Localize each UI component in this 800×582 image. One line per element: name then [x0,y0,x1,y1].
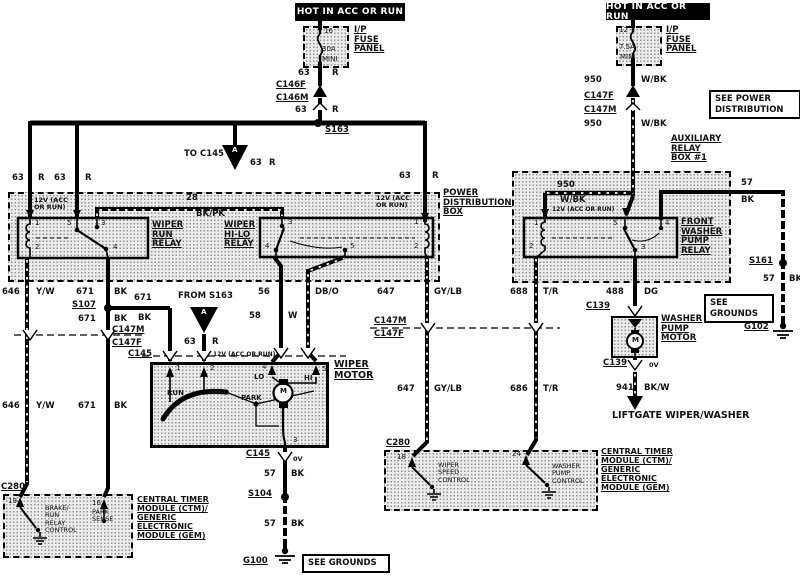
connector-c139-bottom: C139 [603,359,627,369]
from-s163-label: FROM S163 [178,292,233,302]
wire-941-num: 941 [616,384,634,394]
washer-m-letter: M [632,337,639,345]
see-power-distribution-box: SEE POWER DISTRIBUTION [709,90,800,119]
motor-pin3: 3 [293,437,297,445]
wire-56-num: 56 [258,288,270,298]
wire-950b-color: W/BK [641,120,667,130]
hot-label-right: HOT IN ACC OR RUN [606,2,710,22]
relay2-pin3: 3 [288,219,292,227]
relay2-pin1: 1 [414,219,418,227]
wire-646b-num: 646 [2,402,20,412]
see-grounds-box-bottom: SEE GROUNDS [302,554,390,573]
connector-c147m-top: C147M [584,106,616,116]
see-grounds-box-right: SEE GROUNDS [704,294,774,323]
wire-57d-color: BK [291,520,304,530]
front-washer-pump-relay-label: FRONT WASHER PUMP RELAY [681,218,722,256]
connector-c145-left: C145 [128,350,152,360]
ctm-right-title: CENTRAL TIMER MODULE (CTM)/ GENERIC ELEC… [601,448,673,493]
wire-647b-num: 647 [397,385,415,395]
wire-671b-num: 671 [134,294,152,304]
wire-63d-num: 63 [184,338,196,348]
connector-c139-top: C139 [586,302,610,312]
fuse1-pin: 16 [324,28,333,36]
wire-63a-num: 63 [298,69,310,79]
motor-pin2: 2 [210,365,214,373]
motor-m-letter: M [280,388,287,396]
wire-646a-num: 646 [2,288,20,298]
connector-c280-right: C280 [386,439,410,449]
triangle-a-letter-bottom: A [201,309,206,317]
fuse2-rating: 7.5A [619,44,635,52]
ground-g100: G100 [243,557,268,567]
connector-c147m-mid: C147M [374,317,406,327]
ctm-left-park-sense-label: PARK SENSE [92,509,113,524]
wire-57a-color: BK [741,196,754,206]
wire-671d-num: 671 [78,402,96,412]
connector-lines [14,328,560,356]
wire-57b-num: 57 [763,275,775,285]
hot-in-acc-box-left: HOT IN ACC OR RUN [295,3,405,21]
ctm-left-pin19: 19 [8,498,17,506]
wire-63b-num: 63 [295,106,307,116]
wire-647a-color: GY/LB [434,288,462,298]
wire-63d-color: R [212,338,219,348]
wire-950c-num: 950 [557,181,575,191]
washer-pump-motor-title: WASHER PUMP MOTOR [661,315,702,344]
ground-g102: G102 [744,323,769,333]
relay-internals [26,217,661,258]
wire-63c-num: 63 [250,159,262,169]
motor-hi-label: HI [304,375,312,383]
washer-0v-label: 0V [649,362,659,369]
connector-c146f: C146F [276,81,306,91]
ctm-right-pin24: 24 [512,451,521,459]
relay2-pin4: 4 [265,243,269,251]
connector-c280-left: C280 [1,483,25,493]
wire-58-num: 58 [249,312,261,322]
motor-12v-label: 12V (ACC OR RUN) [213,352,275,359]
wire-950b-num: 950 [584,120,602,130]
liftgate-wiper-washer-label: LIFTGATE WIPER/WASHER [612,411,750,422]
relay-outlines [18,218,677,258]
relay3-pin5: 5 [613,220,617,228]
wire-671b-color: BK [138,314,151,324]
relay2-pin2: 2 [414,243,418,251]
connector-c147f-mid: C147F [374,330,404,340]
relay1-pin4: 4 [113,244,117,252]
wire-950a-color: W/BK [641,76,667,86]
wire-671d-color: BK [114,402,127,412]
wire-671c-color: BK [114,315,127,325]
ctm-right-wiper-speed-label: WIPER SPEED CONTROL [438,462,470,484]
wire-28-color: BK/PK [196,210,225,220]
relay1-pin1: 1 [35,220,39,228]
feed2-color: R [85,174,92,184]
connector-c146m: C146M [276,94,308,104]
ctm-left-pin16: 16 [92,500,101,508]
feed3-num: 63 [399,172,411,182]
wire-647b-color: GY/LB [434,385,462,395]
relay3-pin4: 4 [665,220,669,228]
ctm-left-title: CENTRAL TIMER MODULE (CTM)/ GENERIC ELEC… [137,496,209,541]
wire-58-color: W [288,312,297,322]
connector-c147f-left: C147F [112,339,142,349]
to-c145-label: TO C145 [184,150,224,160]
relay1-pin2: 2 [35,244,39,252]
pdb-12v-right: 12V (ACC OR RUN) [376,195,410,210]
ctm-right-pin18: 18 [397,454,406,462]
wire-63b-color: R [332,106,339,116]
relay1-pin5: 5 [67,220,71,228]
wire-671c-num: 671 [78,315,96,325]
connector-c147m-left: C147M [112,326,144,336]
wire-646a-color: Y/W [36,288,55,298]
wire-63a-color: R [332,69,339,79]
wire-686-num: 686 [510,385,528,395]
wire-57d-num: 57 [264,520,276,530]
feed2-num: 63 [54,174,66,184]
wiring-diagram: HOT IN ACC OR RUN HOT IN ACC OR RUN SEE … [0,0,800,582]
relay3-pin1: 1 [534,220,538,228]
wire-941-color: BK/W [644,384,670,394]
wire-950c-color: W/BK [560,196,586,206]
wiper-hilo-relay-label: WIPER HI-LO RELAY [224,221,255,250]
wire-488-color: DG [644,288,658,298]
feed1-num: 63 [12,174,24,184]
relay2-pin5: 5 [350,243,354,251]
fuse1-size: MINI [322,56,337,64]
wire-950a-num: 950 [584,76,602,86]
motor-pin5: 5 [322,366,326,374]
triangle-a-letter-top: A [232,147,237,155]
wire-688-num: 688 [510,288,528,298]
wire-57c-color: BK [291,470,304,480]
wire-671a-num: 671 [76,288,94,298]
hot-in-acc-box-right: HOT IN ACC OR RUN [606,3,710,20]
hot-label-left: HOT IN ACC OR RUN [297,7,403,17]
feed1-color: R [38,174,45,184]
fuse1-rating: 30A [322,46,336,54]
wire-57c-num: 57 [264,470,276,480]
fuse2-panel-label: I/P FUSE PANEL [666,26,696,55]
wire-647a-num: 647 [377,288,395,298]
relay1-pin3: 3 [101,220,105,228]
aux-relay-box-title: AUXILIARY RELAY BOX #1 [671,135,721,164]
motor-0v-label: 0V [293,456,303,463]
wire-671a-color: BK [114,288,127,298]
pdb-title: POWER DISTRIBUTION BOX [443,189,512,218]
relay3-pin3: 3 [641,244,645,252]
splice-s163: S163 [325,126,349,136]
wire-686-color: T/R [543,385,558,395]
fuse1-panel-label: I/P FUSE PANEL [354,26,384,55]
wire-63c-color: R [269,159,276,169]
fuse2-pin: 12 [619,27,628,35]
motor-run-label: RUN [167,390,184,398]
splice-s104: S104 [248,490,272,500]
connector-c147f-top: C147F [584,92,614,102]
motor-lo-label: LO [254,374,264,382]
fuse2-size: MINI [620,54,635,62]
motor-pin4: 4 [262,364,266,372]
wiper-run-relay-label: WIPER RUN RELAY [152,221,183,250]
wire-688-color: T/R [543,288,558,298]
motor-pin1: 1 [176,365,180,373]
aux-12v-label: 12V (ACC OR RUN) [552,207,614,214]
splice-s161: S161 [749,257,773,267]
wire-57a-num: 57 [741,179,753,189]
wire-646b-color: Y/W [36,402,55,412]
ctm-right-washer-pump-label: WASHER PUMP CONTROL [552,463,584,485]
splice-s107: S107 [72,301,96,311]
wire-57b-color: BK [789,275,800,285]
connector-c145-bottom: C145 [246,450,270,460]
wiper-motor-title: WIPER MOTOR [334,360,373,381]
wire-56-color: DB/O [315,288,339,298]
pdb-12v-left: 12V (ACC OR RUN) [34,197,68,212]
motor-park-label: PARK [241,395,262,403]
wire-28-num: 28 [186,194,198,204]
relay3-pin2: 2 [529,243,533,251]
wire-488-num: 488 [606,288,624,298]
feed3-color: R [432,172,439,182]
ctm-left-brake-run-label: BRAKE/ RUN RELAY CONTROL [45,505,77,534]
